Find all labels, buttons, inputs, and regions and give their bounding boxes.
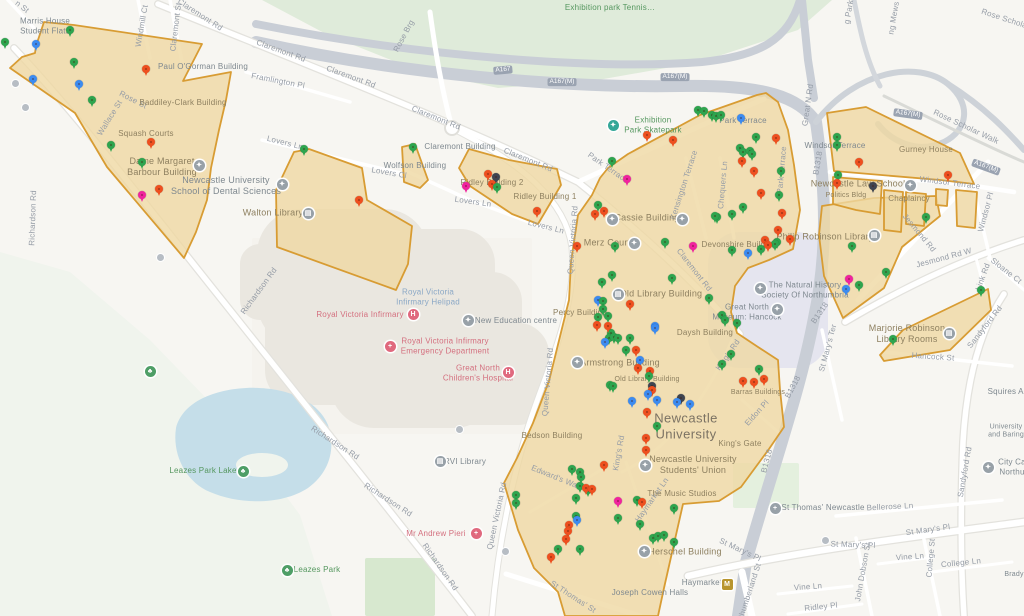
map-pin-p[interactable] — [623, 175, 631, 183]
label-old-library-building[interactable]: Old Library Building — [620, 289, 703, 300]
label-vine-ln: Vine Ln — [896, 551, 925, 563]
church-icon[interactable]: + — [770, 503, 781, 514]
label-leazes-park-lake[interactable]: Leazes Park Lake — [169, 466, 236, 476]
map-pin-g[interactable] — [728, 246, 736, 254]
map-pin-b[interactable] — [644, 390, 652, 398]
map-pin-b[interactable] — [636, 356, 644, 364]
label-newcastle-university[interactable]: Newcastle University — [654, 410, 718, 441]
map-pin-g[interactable] — [717, 111, 725, 119]
transit-icon[interactable] — [822, 537, 829, 544]
label-the-natural-history-society-of-northumbria[interactable]: The Natural History Society Of Northumbr… — [761, 280, 849, 299]
map-pin-p[interactable] — [138, 191, 146, 199]
map-pin-g[interactable] — [752, 133, 760, 141]
zone-richardson-rd[interactable] — [10, 22, 231, 258]
map-pin-g[interactable] — [614, 334, 622, 342]
map-pin-r[interactable] — [634, 364, 642, 372]
transit-icon[interactable] — [12, 80, 19, 87]
map-pin-g[interactable] — [66, 26, 74, 34]
map-pin-d[interactable] — [869, 182, 877, 190]
map-pin-b[interactable] — [737, 114, 745, 122]
library-icon[interactable]: ▤ — [435, 456, 446, 467]
label-wolfson-building[interactable]: Wolfson Building — [384, 161, 447, 171]
label-marris-house-student-flats[interactable]: Marris House Student Flats — [20, 16, 70, 35]
map-pin-g[interactable] — [771, 240, 779, 248]
map-pin-r[interactable] — [142, 65, 150, 73]
map-pin-g[interactable] — [748, 150, 756, 158]
label-exhibition-park-tennis[interactable]: Exhibition park Tennis… — [565, 3, 655, 13]
map-pin-g[interactable] — [577, 473, 585, 481]
building-icon[interactable]: ✦ — [639, 546, 650, 557]
tree-icon[interactable]: ♣ — [238, 466, 249, 477]
map-pin-p[interactable] — [462, 182, 470, 190]
museum-icon[interactable]: ✦ — [772, 304, 783, 315]
map-pin-g[interactable] — [834, 171, 842, 179]
library-icon[interactable]: ▤ — [303, 208, 314, 219]
map-pin-r[interactable] — [772, 134, 780, 142]
road-ramp-north — [854, 0, 880, 86]
label-richardson-rd: Richardson Rd — [27, 190, 39, 246]
label-chaplaincy[interactable]: Chaplaincy — [888, 194, 930, 204]
education-icon[interactable]: ✦ — [463, 315, 474, 326]
map-pin-b[interactable] — [653, 396, 661, 404]
map-pin-g[interactable] — [670, 538, 678, 546]
map-pin-g[interactable] — [1, 38, 9, 46]
label-newcastle-university-school-of-dental-sciences[interactable]: Newcastle University School of Dental Sc… — [171, 175, 281, 197]
map-pin-r[interactable] — [533, 207, 541, 215]
transit-icon[interactable] — [502, 548, 509, 555]
library-icon[interactable]: ▤ — [869, 230, 880, 241]
map-pin-g[interactable] — [572, 494, 580, 502]
tree-icon[interactable]: ♣ — [282, 565, 293, 576]
map-pin-g[interactable] — [622, 346, 630, 354]
map-pin-r[interactable] — [944, 171, 952, 179]
map-pin-b[interactable] — [75, 80, 83, 88]
map-pin-r[interactable] — [833, 179, 841, 187]
map-pin-g[interactable] — [512, 499, 520, 507]
map-pin-g[interactable] — [833, 133, 841, 141]
map-pin-r[interactable] — [738, 157, 746, 165]
map-pin-g[interactable] — [739, 203, 747, 211]
map-pin-g[interactable] — [833, 141, 841, 149]
map-pin-g[interactable] — [614, 514, 622, 522]
label-mr-andrew-pieri[interactable]: Mr Andrew Pieri — [406, 529, 465, 539]
map-pin-b[interactable] — [32, 40, 40, 48]
label-marjorie-robinson-library-rooms[interactable]: Marjorie Robinson Library Rooms — [869, 323, 945, 345]
map-pin-g[interactable] — [848, 242, 856, 250]
map-pin-r[interactable] — [484, 170, 492, 178]
label-paul-o-gorman-building[interactable]: Paul O'Gorman Building — [158, 62, 248, 72]
label-the-music-studios[interactable]: The Music Studios — [647, 489, 716, 499]
map-pin-r[interactable] — [855, 158, 863, 166]
map-pin-g[interactable] — [568, 465, 576, 473]
tree-icon[interactable]: ♣ — [145, 366, 156, 377]
map-pin-g[interactable] — [668, 274, 676, 282]
map-pin-g[interactable] — [728, 210, 736, 218]
map-pin-r[interactable] — [760, 375, 768, 383]
building-icon[interactable]: ✦ — [572, 357, 583, 368]
label-a167-m: A167(M) — [661, 73, 690, 81]
map-pin-p[interactable] — [689, 242, 697, 250]
label-haymarket[interactable]: Haymarket — [682, 578, 722, 588]
map-pin-g[interactable] — [609, 382, 617, 390]
building-icon[interactable]: ✦ — [607, 214, 618, 225]
transit-icon[interactable] — [456, 426, 463, 433]
doctor-icon[interactable]: + — [471, 528, 482, 539]
map-pin-g[interactable] — [611, 242, 619, 250]
label-exhibition-park-skatepark[interactable]: Exhibition Park Skatepark — [624, 115, 682, 134]
label-brady[interactable]: Brady — [1004, 571, 1023, 579]
students-union-icon[interactable]: ✦ — [640, 460, 651, 471]
label-herschel-building[interactable]: Herschel Building — [648, 547, 721, 558]
map-pin-b[interactable] — [744, 249, 752, 257]
map-pin-b[interactable] — [686, 400, 694, 408]
label-newcastle-law-school[interactable]: Newcastle Law School — [811, 179, 906, 190]
label-squires-an[interactable]: Squires An — [988, 387, 1024, 397]
map-pin-r[interactable] — [604, 322, 612, 330]
map-pin-g[interactable] — [493, 183, 501, 191]
map-pin-g[interactable] — [700, 107, 708, 115]
map-pin-g[interactable] — [604, 312, 612, 320]
map-pin-g[interactable] — [512, 491, 520, 499]
label-new-education-centre[interactable]: New Education centre — [475, 316, 557, 326]
map-pin-r[interactable] — [786, 235, 794, 243]
map-pin-r[interactable] — [573, 242, 581, 250]
label-joseph-cowen-halls[interactable]: Joseph Cowen Halls — [612, 588, 689, 598]
label-gurney-house[interactable]: Gurney House — [899, 145, 953, 155]
building-icon[interactable]: ✦ — [194, 160, 205, 171]
map-pin-r[interactable] — [564, 527, 572, 535]
map-pin-g[interactable] — [721, 316, 729, 324]
map-pin-r[interactable] — [147, 138, 155, 146]
map-pin-g[interactable] — [554, 545, 562, 553]
map-pin-g[interactable] — [718, 360, 726, 368]
map-pin-b[interactable] — [842, 285, 850, 293]
map-pin-b[interactable] — [673, 398, 681, 406]
map-pin-r[interactable] — [750, 378, 758, 386]
label-vine-ln: Vine Ln — [794, 581, 823, 593]
map-pin-g[interactable] — [598, 278, 606, 286]
map-pin-g[interactable] — [777, 167, 785, 175]
map-pin-r[interactable] — [778, 209, 786, 217]
label-squash-courts[interactable]: Squash Courts — [118, 129, 174, 139]
map-pin-g[interactable] — [705, 294, 713, 302]
transit-icon[interactable] — [22, 104, 29, 111]
map-pin-g[interactable] — [70, 58, 78, 66]
building-icon[interactable]: ✦ — [629, 238, 640, 249]
map-pin-g[interactable] — [576, 545, 584, 553]
map-pin-r[interactable] — [600, 461, 608, 469]
map-pin-r[interactable] — [642, 446, 650, 454]
map-pin-g[interactable] — [88, 96, 96, 104]
map-pin-b[interactable] — [601, 338, 609, 346]
map-pin-r[interactable] — [750, 167, 758, 175]
map-pin-g[interactable] — [922, 213, 930, 221]
label-rvi-library[interactable]: RVI Library — [444, 457, 486, 467]
map-pin-g[interactable] — [670, 504, 678, 512]
metro-icon[interactable]: M — [722, 579, 733, 590]
label-barras-buildings[interactable]: Barras Buildings — [731, 389, 785, 397]
map-pin-r[interactable] — [638, 498, 646, 506]
map-pin-r[interactable] — [562, 535, 570, 543]
map-pin-r[interactable] — [642, 434, 650, 442]
label-leazes-park[interactable]: Leazes Park — [294, 565, 341, 575]
map-pin-r[interactable] — [643, 131, 651, 139]
map-pin-p[interactable] — [614, 497, 622, 505]
label-baddiley-clark-building[interactable]: Baddiley-Clark Building — [139, 98, 226, 108]
map-pin-g[interactable] — [977, 286, 985, 294]
map-pin-g[interactable] — [653, 422, 661, 430]
hospital-icon[interactable]: H — [503, 367, 514, 378]
map-pin-r[interactable] — [764, 241, 772, 249]
transit-icon[interactable] — [157, 254, 164, 261]
school-icon[interactable]: ✦ — [277, 179, 288, 190]
label-king-s-gate[interactable]: King's Gate — [718, 439, 761, 449]
label-royal-victoria-infirmary-helipad[interactable]: Royal Victoria Infirmary Helipad — [396, 287, 460, 306]
map-pin-b[interactable] — [29, 75, 37, 83]
map-pin-r[interactable] — [593, 321, 601, 329]
map-pin-g[interactable] — [138, 158, 146, 166]
label-st-thomas-newcastle[interactable]: St Thomas' Newcastle — [781, 503, 864, 513]
map-pin-g[interactable] — [855, 281, 863, 289]
label-politics-bldg[interactable]: Politics Bldg — [826, 192, 867, 200]
label-walton-library[interactable]: Walton Library — [243, 208, 304, 219]
library-icon[interactable]: ▤ — [613, 289, 624, 300]
label-royal-victoria-infirmary-emergency-department[interactable]: Royal Victoria Infirmary Emergency Depar… — [401, 336, 489, 355]
label-newcastle-university-students-union[interactable]: Newcastle University Students' Union — [649, 454, 737, 476]
map-pin-g[interactable] — [660, 531, 668, 539]
map-pin-r[interactable] — [739, 377, 747, 385]
map-pin-g[interactable] — [889, 335, 897, 343]
map-pin-g[interactable] — [608, 157, 616, 165]
map-pin-g[interactable] — [626, 334, 634, 342]
map-pin-r[interactable] — [547, 553, 555, 561]
map-pin-g[interactable] — [608, 271, 616, 279]
building-icon[interactable]: ✦ — [677, 214, 688, 225]
label-merz-court[interactable]: Merz Court — [584, 238, 631, 249]
university-icon[interactable]: ✦ — [983, 462, 994, 473]
green-patch — [365, 558, 435, 616]
label-bedson-building[interactable]: Bedson Building — [522, 431, 583, 441]
map-pin-g[interactable] — [733, 319, 741, 327]
map-pin-g[interactable] — [636, 520, 644, 528]
map-pin-b[interactable] — [573, 516, 581, 524]
map-pin-r[interactable] — [626, 300, 634, 308]
map-pin-r[interactable] — [355, 196, 363, 204]
map-pin-g[interactable] — [409, 143, 417, 151]
map-pin-r[interactable] — [643, 408, 651, 416]
label-daysh-building[interactable]: Daysh Building — [677, 328, 733, 338]
map-pin-r[interactable] — [600, 207, 608, 215]
skatepark-icon[interactable]: ✦ — [608, 120, 619, 131]
map-pin-g[interactable] — [645, 372, 653, 380]
label-city-ca-northu[interactable]: City Ca Northu — [998, 457, 1024, 476]
map-pin-g[interactable] — [594, 313, 602, 321]
museum-building — [738, 262, 798, 338]
label-royal-victoria-infirmary[interactable]: Royal Victoria Infirmary — [316, 310, 403, 320]
map-pin-r[interactable] — [632, 346, 640, 354]
map-pin-g[interactable] — [775, 191, 783, 199]
map-pin-g[interactable] — [711, 212, 719, 220]
label-cassie-building[interactable]: Cassie Building — [614, 213, 679, 224]
emergency-icon[interactable]: + — [385, 341, 396, 352]
map-pin-g[interactable] — [755, 365, 763, 373]
map-pin-r[interactable] — [155, 185, 163, 193]
map-pin-g[interactable] — [300, 145, 308, 153]
map-pin-g[interactable] — [727, 350, 735, 358]
map-canvas[interactable]: Claremont RdClaremont RdClaremont RdClar… — [0, 0, 1024, 616]
base-map-layer — [0, 0, 1024, 616]
map-pin-g[interactable] — [599, 297, 607, 305]
zone-windsor-east[interactable] — [956, 190, 977, 228]
label-a167: A167 — [493, 65, 513, 74]
label-claremont-building[interactable]: Claremont Building — [424, 142, 495, 152]
map-pin-r[interactable] — [757, 189, 765, 197]
library-icon[interactable]: ▤ — [944, 328, 955, 339]
zone-windsor-sliver[interactable] — [936, 189, 948, 206]
map-pin-b[interactable] — [651, 324, 659, 332]
map-pin-r[interactable] — [591, 210, 599, 218]
map-pin-g[interactable] — [882, 268, 890, 276]
map-pin-r[interactable] — [588, 485, 596, 493]
map-pin-g[interactable] — [661, 238, 669, 246]
school-icon[interactable]: ✦ — [905, 180, 916, 191]
map-pin-g[interactable] — [107, 141, 115, 149]
map-pin-b[interactable] — [628, 397, 636, 405]
map-pin-r[interactable] — [774, 226, 782, 234]
map-pin-p[interactable] — [845, 275, 853, 283]
map-pin-r[interactable] — [669, 136, 677, 144]
label-ridley-building-1[interactable]: Ridley Building 1 — [514, 192, 577, 202]
label-a167-m: A167(M) — [548, 78, 577, 86]
society-icon[interactable]: ✦ — [755, 283, 766, 294]
label-university-and-baring[interactable]: University and Baring — [988, 424, 1024, 441]
hospital-icon[interactable]: H — [408, 309, 419, 320]
